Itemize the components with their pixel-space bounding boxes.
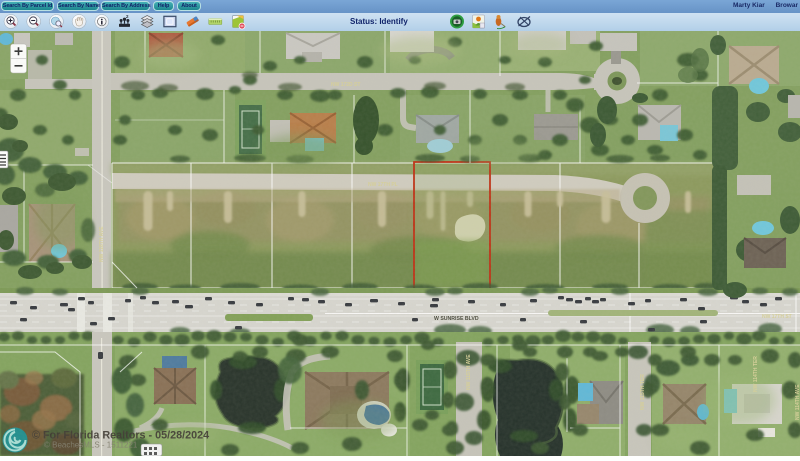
svg-text:2: 2 xyxy=(126,14,129,19)
